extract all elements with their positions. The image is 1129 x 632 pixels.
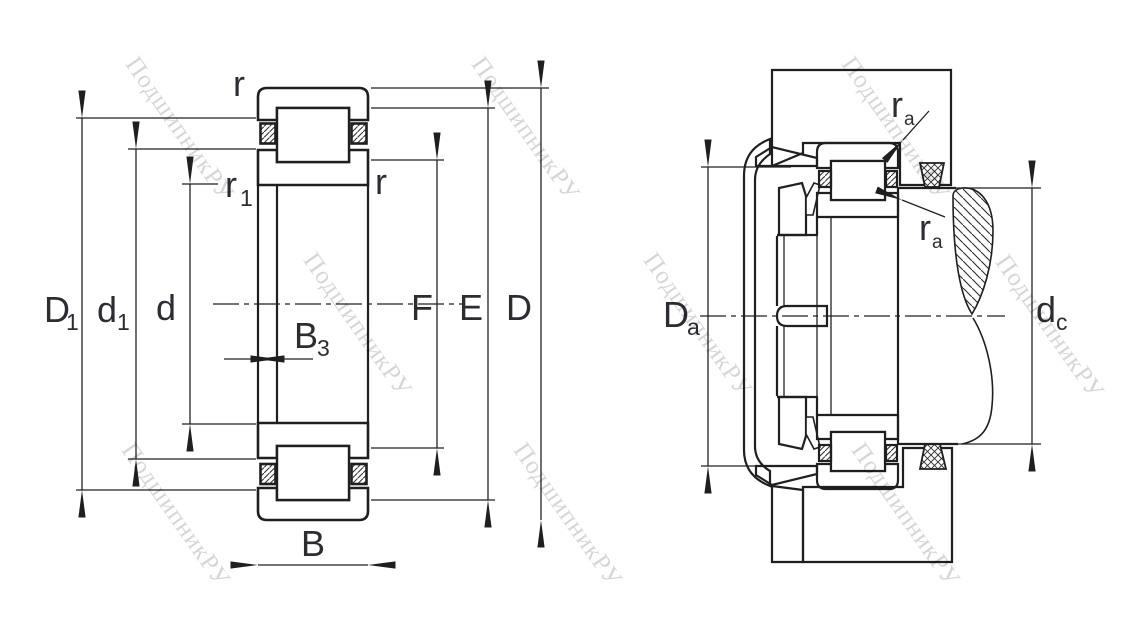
technical-drawing-page: D 1 d 1 d B 3 B F E D r r r 1 (0, 0, 1129, 632)
mounted-cage-top-right (886, 171, 897, 187)
cage-top-left (261, 124, 276, 144)
label-B: B (301, 523, 325, 564)
label-d1: d (97, 289, 117, 330)
right-figure-mounted-bearing: D a d c r a r a (663, 70, 1068, 562)
label-ra-bottom-sub: a (932, 232, 943, 253)
roller-bottom (277, 446, 349, 500)
left-figure-bearing-section: D 1 d 1 d B 3 B F E D r r r 1 (44, 63, 549, 565)
spacer-ring-bottom (779, 397, 806, 449)
label-D: D (506, 287, 532, 328)
bearing-drawing: D 1 d 1 d B 3 B F E D r r r 1 (0, 0, 1129, 632)
label-r-top: r (233, 63, 245, 104)
end-cover-wall (744, 139, 770, 486)
cover-flange-bottom (772, 486, 803, 562)
cage-bottom-right (352, 464, 367, 484)
cage-top-right (352, 124, 367, 144)
label-F: F (411, 287, 433, 328)
label-d: d (156, 287, 176, 328)
mounted-roller-bottom (831, 432, 885, 471)
shaft-break-upper (953, 188, 993, 314)
label-r-right: r (375, 161, 387, 202)
label-d1-sub: 1 (117, 309, 130, 335)
mounted-cage-bottom-left (819, 445, 831, 461)
label-r1: r (225, 164, 237, 205)
label-Da: D (663, 294, 689, 335)
mounted-cage-bottom-right (886, 445, 897, 461)
locking-piece-top (920, 163, 944, 187)
spacer-ring-top (779, 183, 806, 235)
mounted-cage-top-left (819, 171, 831, 187)
mounted-roller-top (831, 161, 885, 200)
label-ra-top-sub: a (904, 109, 915, 130)
label-Da-sub: a (687, 314, 700, 340)
label-E: E (459, 287, 483, 328)
cage-bottom-left (261, 464, 276, 484)
label-r1-sub: 1 (240, 185, 253, 211)
label-dc: d (1036, 289, 1056, 330)
shaft-break-lower (962, 318, 993, 444)
label-B3-sub: 3 (317, 335, 330, 361)
label-dc-sub: c (1056, 309, 1068, 335)
label-ra-top: r (891, 84, 903, 125)
label-D1-sub: 1 (66, 309, 79, 335)
label-B3: B (294, 315, 318, 356)
roller-top (277, 108, 349, 162)
label-ra-bottom: r (919, 207, 931, 248)
